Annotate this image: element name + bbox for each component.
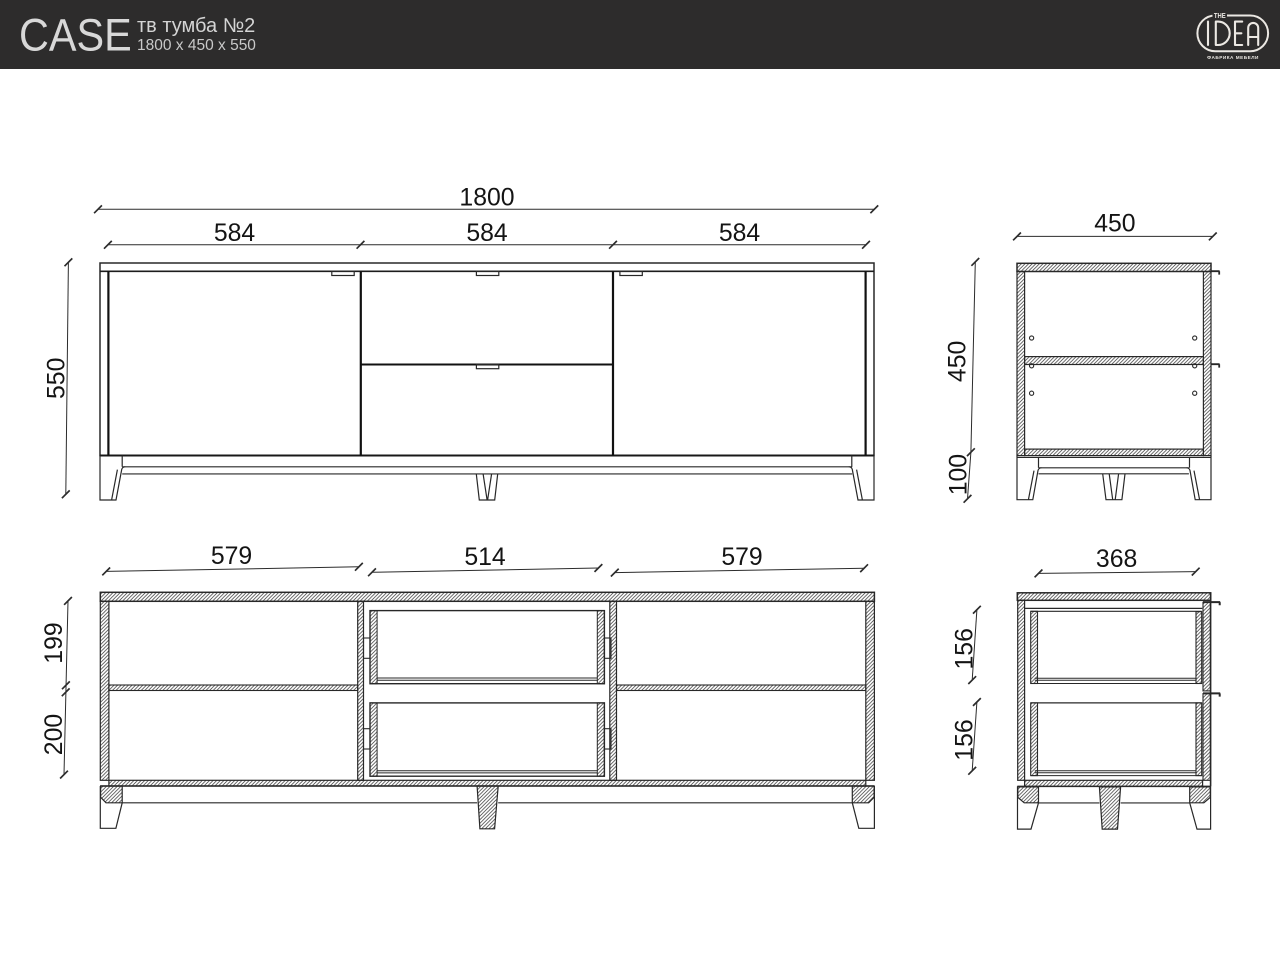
svg-text:200: 200: [41, 714, 68, 755]
svg-text:368: 368: [1096, 546, 1137, 573]
svg-text:550: 550: [43, 358, 70, 399]
svg-text:450: 450: [1094, 211, 1135, 238]
svg-text:156: 156: [951, 719, 978, 760]
svg-text:156: 156: [951, 628, 978, 669]
svg-text:тв тумба №2: тв тумба №2: [137, 15, 255, 37]
svg-text:514: 514: [464, 544, 506, 571]
svg-text:199: 199: [41, 622, 68, 663]
svg-text:584: 584: [214, 220, 256, 247]
svg-text:1800: 1800: [459, 185, 514, 212]
svg-text:100: 100: [946, 454, 973, 495]
svg-text:579: 579: [721, 544, 762, 571]
svg-text:1800 x 450 x 550: 1800 x 450 x 550: [137, 37, 256, 54]
svg-text:579: 579: [211, 543, 252, 570]
svg-text:ФАБРИКА МЕБЕЛИ: ФАБРИКА МЕБЕЛИ: [1207, 55, 1259, 60]
svg-text:THE: THE: [1214, 12, 1226, 20]
svg-text:CASE: CASE: [19, 11, 132, 61]
svg-text:450: 450: [944, 341, 971, 382]
svg-text:584: 584: [466, 220, 508, 247]
svg-text:584: 584: [719, 220, 761, 247]
